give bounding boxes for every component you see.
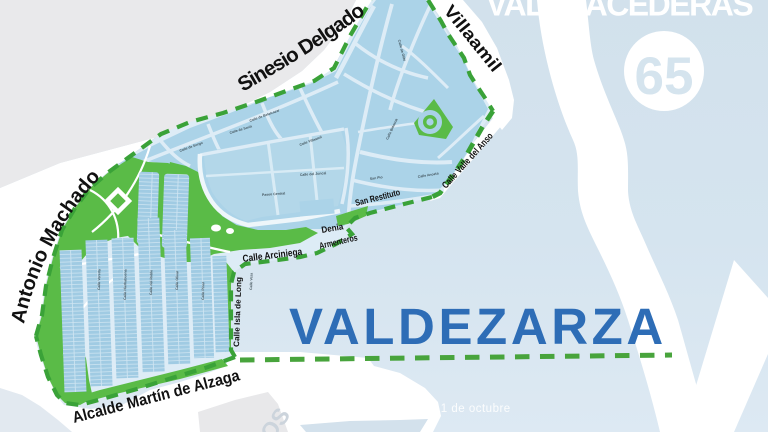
svg-text:Calle Hierbabuena: Calle Hierbabuena — [123, 269, 128, 300]
svg-text:Calle Olivar: Calle Olivar — [175, 270, 179, 290]
svg-text:Calle Vereda: Calle Vereda — [97, 269, 101, 290]
svg-text:VALDEACEDERAS: VALDEACEDERAS — [486, 0, 753, 23]
svg-text:VALDEZARZA: VALDEZARZA — [289, 298, 667, 355]
svg-text:Calle Veza: Calle Veza — [249, 273, 254, 290]
svg-text:Calle Pinar: Calle Pinar — [201, 281, 205, 300]
svg-text:65: 65 — [635, 47, 694, 106]
svg-text:Calle del Roble: Calle del Roble — [149, 270, 153, 295]
svg-text:l 1 de octubre: l 1 de octubre — [434, 403, 511, 415]
